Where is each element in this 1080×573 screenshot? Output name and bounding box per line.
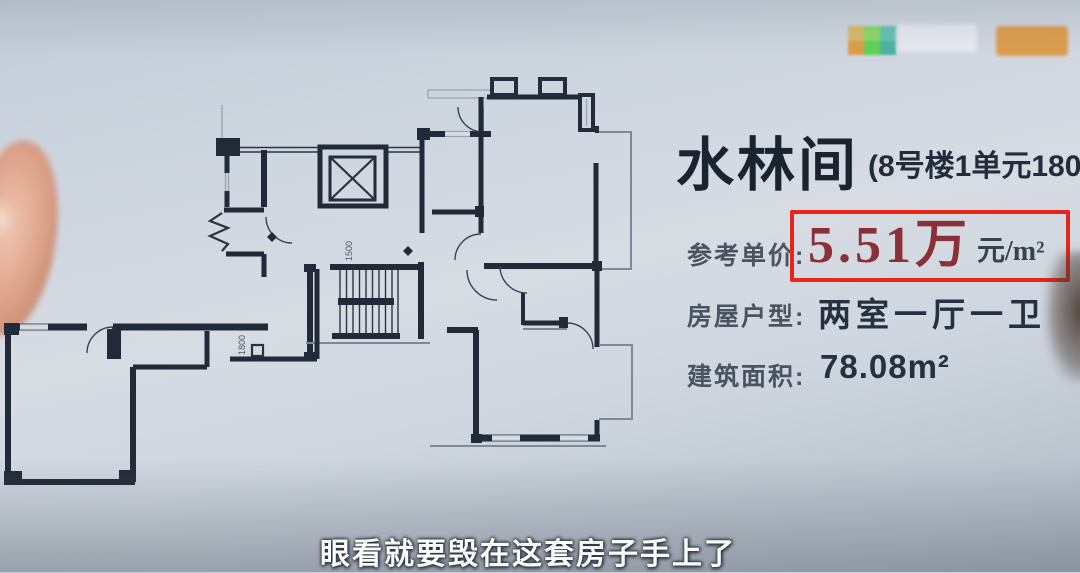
mosaic-tile xyxy=(848,41,864,56)
dimension-label: 1800 xyxy=(237,335,247,355)
price-unit: 元/m² xyxy=(977,238,1045,266)
orange-watermark-badge xyxy=(996,26,1068,56)
layout-value: 两室一厅一卫 xyxy=(818,288,1046,336)
mosaic-tile xyxy=(848,26,864,41)
mosaic-tile xyxy=(864,41,880,56)
price-label: 参考单价: xyxy=(687,236,805,272)
area-value: 78.08m² xyxy=(820,348,950,386)
right-wing-lower-walls xyxy=(430,261,632,446)
dimension-label: 1500 xyxy=(344,241,354,261)
right-wing-upper-walls xyxy=(417,79,631,269)
property-title: 水林间 xyxy=(676,118,859,202)
lower-left-room-walls xyxy=(4,269,317,485)
subtitle-text: 眼看就要毁在这套房子手上了 xyxy=(320,529,736,573)
price-value: 5.51万 xyxy=(808,220,971,272)
staircase xyxy=(304,262,430,360)
layout-label: 房屋户型: xyxy=(687,297,805,333)
elevator-shaft xyxy=(320,147,386,206)
door-marker-diamond xyxy=(267,232,277,242)
door-marker-diamond xyxy=(403,246,413,256)
white-watermark-badge xyxy=(897,24,977,52)
price-highlight-box: 5.51万 元/m² xyxy=(790,210,1070,282)
area-label: 建筑面积: xyxy=(687,357,805,393)
mosaic-tile xyxy=(880,26,896,41)
floorplan-drawing: 1500 1800 xyxy=(0,55,670,515)
hand-shadow-right-edge xyxy=(1046,252,1080,382)
mosaic-tile xyxy=(864,26,880,41)
mosaic-tile xyxy=(880,41,896,56)
left-wing-walls xyxy=(210,105,292,277)
video-subtitle: 眼看就要毁在这套房子手上了 xyxy=(0,529,1080,573)
mosaic-logo-icon xyxy=(848,26,896,55)
unit-info: (8号楼1单元1802 xyxy=(868,141,1080,185)
